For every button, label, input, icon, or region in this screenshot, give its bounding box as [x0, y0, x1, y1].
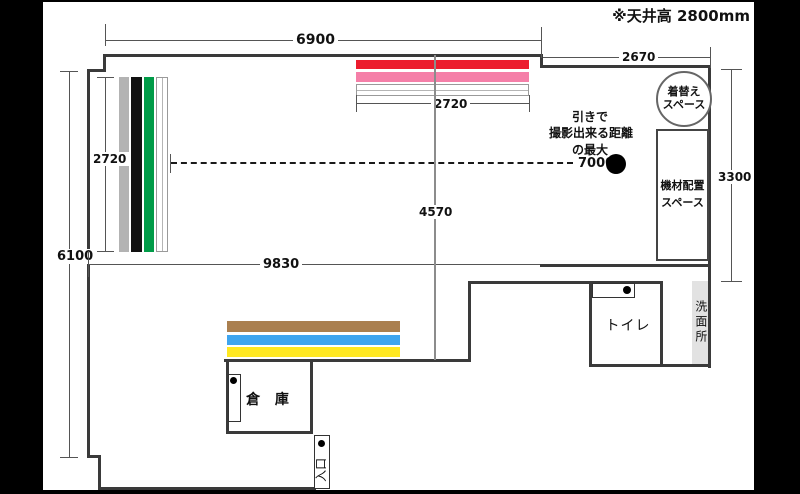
entrance-dot-icon	[318, 440, 325, 447]
dimension-4570-label: 4570	[416, 205, 455, 219]
wall-right-wing-bottom	[540, 264, 711, 267]
dimension-6900-label: 6900	[293, 32, 338, 48]
dimension-9830-label: 9830	[260, 257, 302, 272]
shooting-distance-dashed-line	[171, 162, 573, 164]
toilet-door-dot-icon	[623, 286, 631, 294]
wall-mid-vertical	[468, 281, 471, 362]
floor-plan: ※天井高 2800mm 洗面所 トイレ 倉 庫 入口 着替え スペース 機材配置…	[0, 0, 800, 494]
wall-washroom-bottom	[660, 364, 711, 367]
wall-top-right	[540, 65, 711, 68]
entrance-label: 入口	[315, 448, 329, 492]
dimension-tick	[105, 24, 106, 46]
dimension-2720-top-label: 2720	[431, 97, 470, 111]
dimension-9830-line	[89, 264, 540, 265]
changing-space-circle: 着替え スペース	[656, 71, 712, 127]
dimension-tick	[721, 69, 742, 70]
backdrop-bar-yellow	[227, 347, 400, 357]
wall-top-left	[104, 54, 543, 57]
backdrop-bar-green	[144, 77, 154, 252]
dimension-3300-label: 3300	[715, 170, 754, 184]
backdrop-bar-blue	[227, 335, 400, 345]
toilet-label: トイレ	[601, 318, 655, 334]
storage-door-dot-icon	[230, 377, 237, 384]
dimension-tick	[88, 251, 89, 277]
dimension-tick	[721, 281, 742, 282]
shooting-note-line-1: 引きで	[550, 111, 630, 125]
dimension-tick	[97, 77, 114, 78]
dimension-tick	[97, 251, 114, 252]
wall-mid-horizontal	[468, 281, 593, 284]
equipment-space-box: 機材配置 スペース	[656, 129, 709, 261]
dimension-tick	[60, 457, 78, 458]
shooting-note-line-2: 撮影出来る距離	[548, 127, 634, 141]
ceiling-height-note: ※天井高 2800mm	[612, 8, 750, 25]
storage-label: 倉 庫	[240, 392, 300, 408]
equipment-space-label-1: 機材配置	[661, 180, 705, 193]
wall-bottom	[98, 487, 316, 490]
dimension-tick	[710, 47, 711, 68]
dimension-tick	[356, 95, 357, 112]
backdrop-bar-white-top	[356, 84, 529, 96]
backdrop-bar-brown	[227, 321, 400, 332]
changing-space-label-2: スペース	[663, 99, 706, 112]
washroom-label: 洗面所	[693, 300, 707, 345]
dimension-tick	[541, 27, 542, 58]
equipment-space-label-2: スペース	[661, 197, 704, 210]
dimension-2720-left-label: 2720	[90, 152, 129, 166]
backdrop-bar-black	[131, 77, 142, 252]
dimension-2670-label: 2670	[619, 50, 658, 64]
dimension-6100-label: 6100	[54, 249, 96, 264]
wall-bottom-step-v	[98, 455, 101, 490]
backdrop-bar-white-left	[156, 77, 168, 252]
dimension-tick	[529, 95, 530, 112]
dimension-tick	[60, 71, 78, 72]
dimension-6100-line	[69, 71, 70, 457]
washroom-area: 洗面所	[692, 281, 708, 364]
backdrop-bar-pink	[356, 72, 529, 82]
camera-position-dot-icon	[606, 154, 626, 174]
backdrop-bar-red	[356, 60, 529, 69]
